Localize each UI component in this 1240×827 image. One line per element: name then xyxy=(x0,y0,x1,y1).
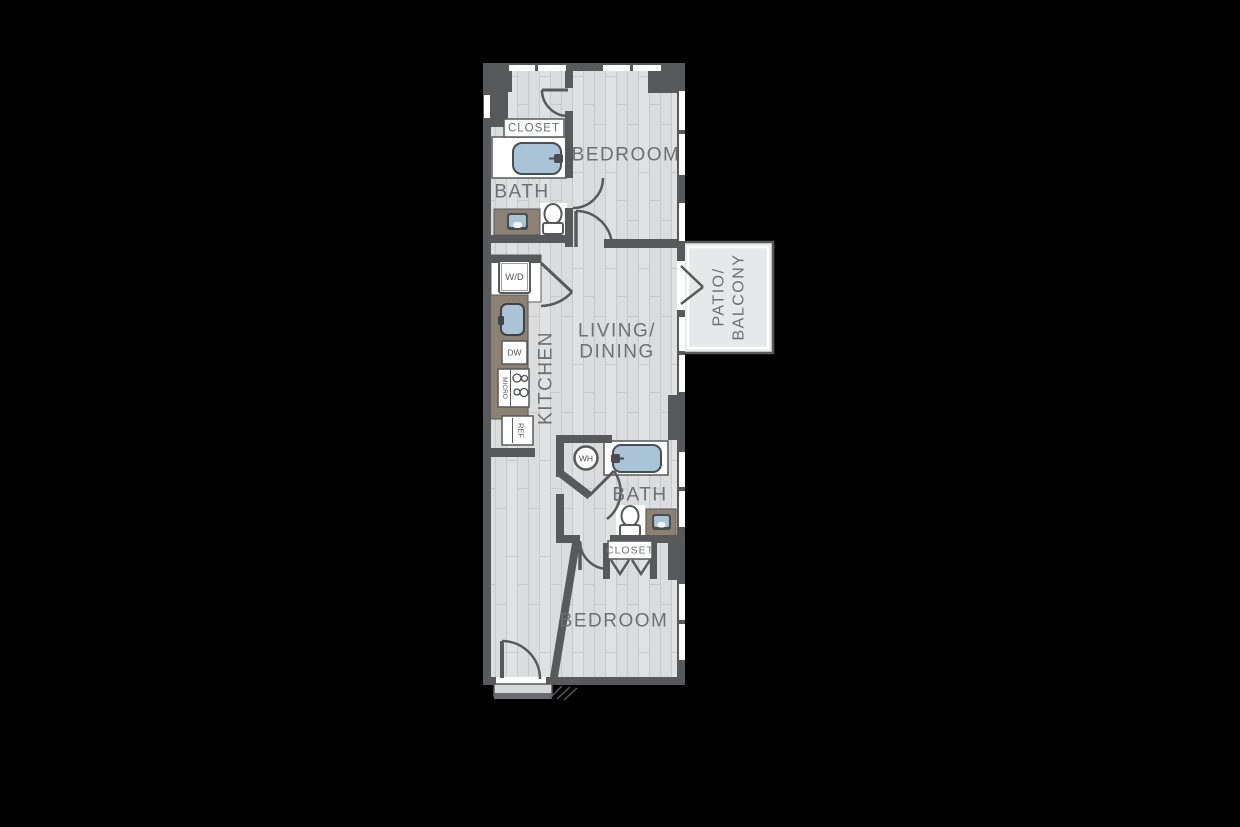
window-top-2 xyxy=(538,65,566,71)
window-top-1 xyxy=(509,65,535,71)
toilet-bottom-icon xyxy=(620,506,640,536)
label-washer-dryer: W/D xyxy=(505,272,524,283)
label-bath-top: BATH xyxy=(494,182,549,203)
kitchen-sink-icon xyxy=(498,304,524,335)
label-bedroom-top: BEDROOM xyxy=(572,145,681,166)
patio-balcony xyxy=(683,242,773,353)
sink-bottom-icon xyxy=(652,514,671,530)
label-patio-line1: PATIO/ xyxy=(711,267,728,326)
window-right-1 xyxy=(679,91,685,130)
window-right-4 xyxy=(679,317,685,351)
label-patio-line2: BALCONY xyxy=(731,254,748,341)
label-bath-bottom: BATH xyxy=(612,485,667,506)
label-dishwasher: DW xyxy=(507,348,521,358)
label-bedroom-bottom: BEDROOM xyxy=(560,611,669,632)
floorplan-canvas: BEDROOM CLOSET BATH KITCHEN LIVING/ DINI… xyxy=(0,0,1240,827)
window-right-6 xyxy=(679,452,685,487)
label-refrigerator: REF xyxy=(517,423,526,438)
window-left-1 xyxy=(484,95,490,118)
label-range-micro: MICRO xyxy=(501,377,508,399)
window-right-9 xyxy=(679,624,685,660)
window-right-5 xyxy=(679,355,685,392)
floor-plan: BEDROOM CLOSET BATH KITCHEN LIVING/ DINI… xyxy=(0,0,1240,827)
label-living-line1: LIVING/ xyxy=(578,321,656,342)
toilet-top-icon xyxy=(543,204,563,234)
bathtub-top-icon xyxy=(513,143,563,174)
label-living-line2: DINING xyxy=(579,342,655,363)
label-kitchen: KITCHEN xyxy=(536,331,557,425)
sink-top-icon xyxy=(507,213,528,230)
entry-stoop xyxy=(494,684,577,700)
window-top-3 xyxy=(603,65,630,71)
label-closet-top: CLOSET xyxy=(508,123,560,135)
window-top-4 xyxy=(633,65,661,71)
label-closet-bottom: CLOSET xyxy=(606,545,654,557)
window-right-7 xyxy=(679,491,685,527)
label-water-heater: WH xyxy=(579,454,593,464)
bathtub-bottom-icon xyxy=(611,445,661,472)
window-right-8 xyxy=(679,584,685,620)
window-right-3 xyxy=(679,203,685,241)
